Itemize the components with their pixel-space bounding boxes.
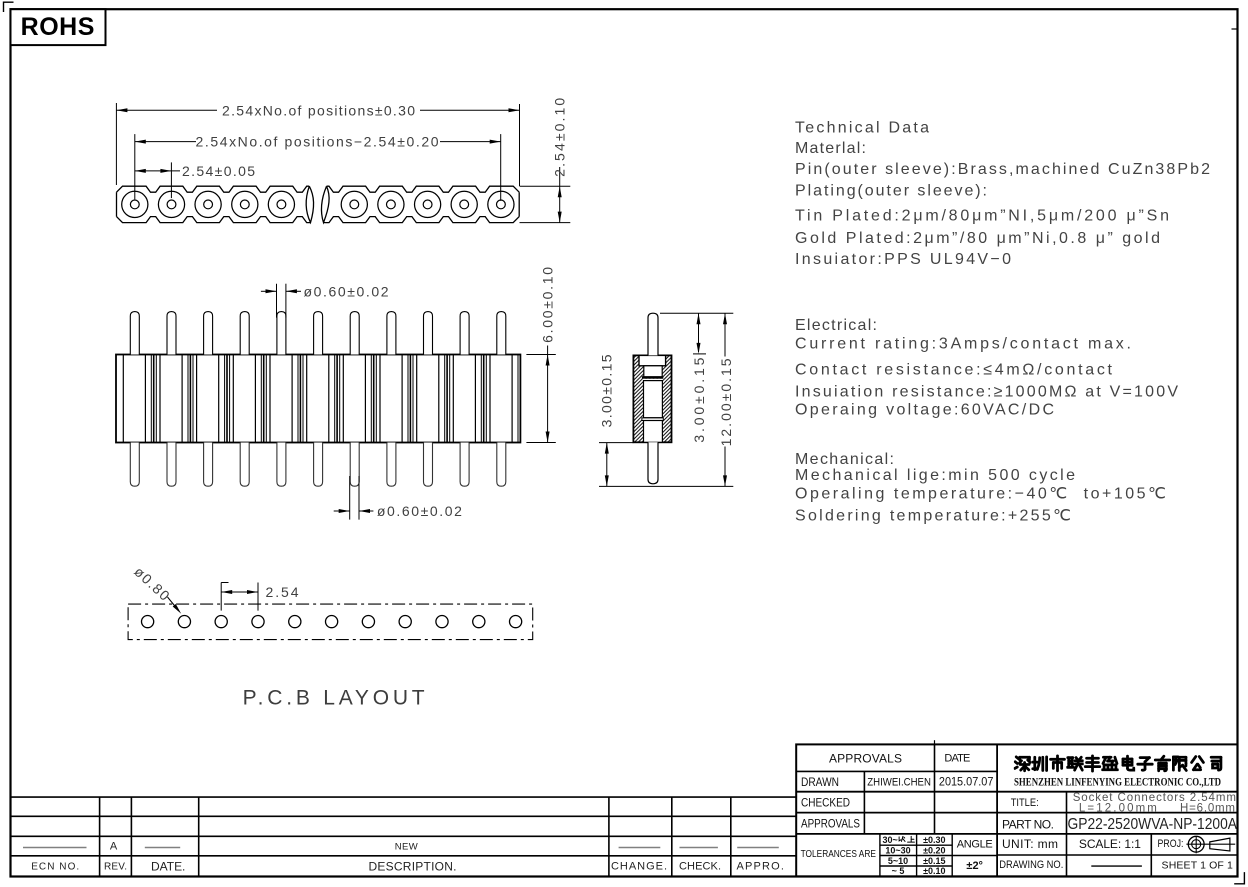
svg-text:SHENZHEN LINFENYING ELECTRONIC: SHENZHEN LINFENYING ELECTRONIC CO.,LTD [1014,777,1221,789]
svg-text:Soldering temperature:+255℃: Soldering temperature:+255℃ [795,508,1071,525]
svg-text:3.00±0.15: 3.00±0.15 [599,354,615,427]
svg-text:±0.30: ±0.30 [923,835,945,845]
svg-text:30~: 30~ [883,835,898,845]
svg-text:Mechanical:: Mechanical: [795,451,894,468]
svg-text:ø0.80: ø0.80 [131,563,173,603]
svg-text:CHANGE.: CHANGE. [611,861,667,873]
svg-text:ECN NO.: ECN NO. [31,861,79,872]
svg-text:Technical Data: Technical Data [795,120,929,137]
svg-text:Current rating:3Amps/contact m: Current rating:3Amps/contact max. [795,335,1131,352]
svg-text:2.54xNo.of positions−2.54±0.20: 2.54xNo.of positions−2.54±0.20 [196,134,439,150]
svg-text:CHECK.: CHECK. [679,861,721,873]
svg-text:2015.07.07: 2015.07.07 [939,776,994,788]
svg-text:TITLE:: TITLE: [1011,797,1039,809]
svg-text:APPROVALS: APPROVALS [801,817,860,831]
svg-text:UNIT: mm: UNIT: mm [1002,837,1058,851]
svg-text:DATE.: DATE. [151,860,185,874]
svg-text:Plating(outer sleeve):: Plating(outer sleeve): [795,183,987,200]
svg-text:6.00±0.10: 6.00±0.10 [540,267,556,343]
svg-text:±2°: ±2° [966,860,983,872]
svg-text:H=6.0mm: H=6.0mm [1180,802,1235,814]
svg-text:Mechanical lige:min 500 cycle: Mechanical lige:min 500 cycle [795,467,1075,484]
svg-text:CHECKED: CHECKED [801,796,850,810]
svg-text:Operaing voltage:60VAC/DC: Operaing voltage:60VAC/DC [795,401,1054,418]
svg-text:REV.: REV. [104,861,127,872]
svg-text:SCALE: 1:1: SCALE: 1:1 [1079,837,1141,851]
svg-text:Insuiation resistance:≥1000MΩ: Insuiation resistance:≥1000MΩ at V=100V [795,383,1178,400]
svg-text:±0.20: ±0.20 [923,845,945,855]
svg-text:GP22-2520WVA-NP-1200A: GP22-2520WVA-NP-1200A [1068,816,1238,833]
svg-text:PART NO.: PART NO. [1002,817,1054,831]
svg-text:TOLERANCES ARE: TOLERANCES ARE [801,849,877,860]
svg-text:ROHS: ROHS [21,13,95,41]
svg-text:DRAWING NO.: DRAWING NO. [999,859,1063,871]
svg-text:DRAWN: DRAWN [801,775,839,789]
svg-text:2.54: 2.54 [266,584,299,600]
svg-text:Tin Plated:2μm/80μm”NI,5μm/200: Tin Plated:2μm/80μm”NI,5μm/200 μ”Sn [795,208,1169,225]
svg-text:3.00±0.15: 3.00±0.15 [691,357,707,442]
svg-text:2.54±0.10: 2.54±0.10 [552,98,568,177]
svg-text:Gold Plated:2μm”/80 μm”Ni,0.8: Gold Plated:2μm”/80 μm”Ni,0.8 μ” gold [795,230,1160,247]
svg-text:DATE: DATE [944,753,970,765]
svg-text:PROJ:: PROJ: [1158,838,1184,850]
svg-text:Electrical:: Electrical: [795,317,877,334]
svg-text:APPRO.: APPRO. [736,861,784,873]
svg-text:SHEET 1 OF 1: SHEET 1 OF 1 [1162,859,1233,871]
svg-text:A: A [110,841,118,853]
svg-text:DESCRIPTION.: DESCRIPTION. [369,860,457,874]
svg-text:12.00±0.15: 12.00±0.15 [718,358,734,446]
svg-text:P.C.B LAYOUT: P.C.B LAYOUT [243,687,425,710]
svg-text:2.54xNo.of positions±0.30: 2.54xNo.of positions±0.30 [222,102,415,118]
svg-text:±0.15: ±0.15 [923,856,945,866]
svg-text:ø0.60±0.02: ø0.60±0.02 [377,503,462,519]
svg-text:NEW: NEW [395,841,418,852]
svg-text:Contact resistance:≤4mΩ/contac: Contact resistance:≤4mΩ/contact [795,362,1113,379]
svg-text:L=12.00mm: L=12.00mm [1079,802,1157,814]
svg-text:~ 5: ~ 5 [892,866,905,876]
svg-text:2.54±0.05: 2.54±0.05 [182,163,255,179]
svg-text:5~10: 5~10 [888,856,908,866]
svg-text:±0.10: ±0.10 [923,866,945,876]
svg-text:APPROVALS: APPROVALS [829,752,902,766]
svg-text:ø0.60±0.02: ø0.60±0.02 [304,283,389,299]
svg-text:Materlal:: Materlal: [795,140,866,157]
svg-text:Operaling temperature:−40℃ to: Operaling temperature:−40℃ to+105℃ [795,486,1166,503]
svg-text:Pin(outer sleeve):Brass,machin: Pin(outer sleeve):Brass,machined CuZn38P… [795,161,1210,178]
svg-text:ANGLE: ANGLE [957,839,993,851]
svg-text:10~30: 10~30 [885,845,910,855]
svg-text:Insuiator:PPS UL94V−0: Insuiator:PPS UL94V−0 [795,251,1011,268]
svg-text:ZHIWEI.CHEN: ZHIWEI.CHEN [867,776,931,788]
